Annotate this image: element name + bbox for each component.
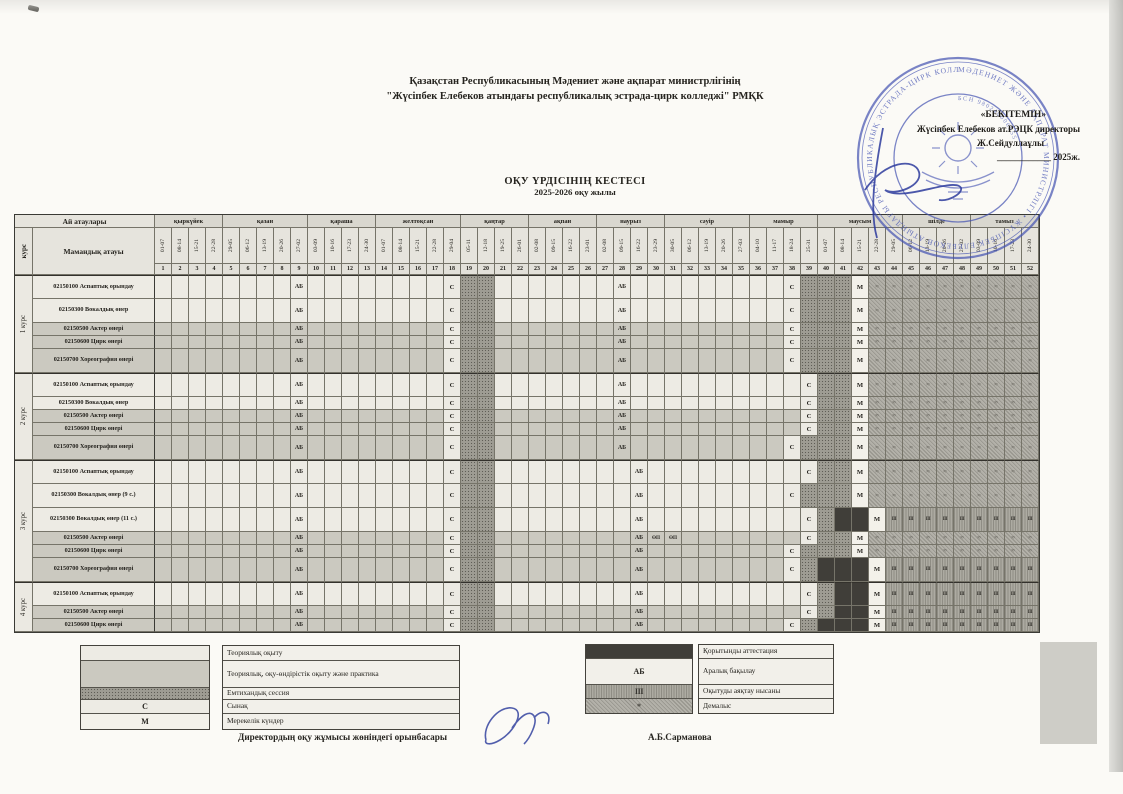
week-cell xyxy=(818,336,835,349)
vertical-text: 23-01 xyxy=(585,239,591,252)
vertical-text: 18-24 xyxy=(789,239,795,252)
week-cell xyxy=(478,397,495,410)
week-cell: ≈ xyxy=(1005,397,1022,410)
week-cell xyxy=(223,397,240,410)
week-number: 35 xyxy=(733,264,750,275)
specialty-row-label: 02150100 Аспаптық орындау xyxy=(33,275,155,299)
week-cell xyxy=(376,606,393,619)
week-cell xyxy=(801,275,818,299)
week-cell xyxy=(546,582,563,606)
week-cell: АБ xyxy=(614,410,631,423)
week-cell xyxy=(597,373,614,397)
week-cell xyxy=(342,349,359,373)
week-cell xyxy=(206,582,223,606)
week-cell xyxy=(359,349,376,373)
week-cell: ≈ xyxy=(1022,460,1039,484)
week-cell: АБ xyxy=(291,606,308,619)
week-cell xyxy=(478,619,495,632)
week-cell: ≈ xyxy=(937,484,954,508)
week-cell xyxy=(648,460,665,484)
week-cell: ІІІ xyxy=(937,558,954,582)
week-cell xyxy=(597,582,614,606)
week-cell: ≈ xyxy=(903,397,920,410)
week-cell xyxy=(767,582,784,606)
week-cell xyxy=(393,436,410,460)
week-cell: АБ xyxy=(631,619,648,632)
week-cell: ≈ xyxy=(988,484,1005,508)
week-cell xyxy=(563,423,580,436)
week-cell: АБ xyxy=(291,349,308,373)
vertical-text: 17-23 xyxy=(347,239,353,252)
week-cell xyxy=(750,373,767,397)
week-cell xyxy=(189,410,206,423)
week-number: 1 xyxy=(155,264,172,275)
week-cell: АБ xyxy=(291,558,308,582)
week-cell xyxy=(495,619,512,632)
week-cell: ≈ xyxy=(920,545,937,558)
week-cell xyxy=(427,299,444,323)
week-cell xyxy=(563,373,580,397)
vertical-text: 06-12 xyxy=(245,239,251,252)
week-cell xyxy=(172,484,189,508)
week-cell xyxy=(716,558,733,582)
week-cell xyxy=(716,275,733,299)
week-cell xyxy=(563,606,580,619)
week-cell: ≈ xyxy=(886,349,903,373)
week-cell: ≈ xyxy=(988,373,1005,397)
week-number: 28 xyxy=(614,264,631,275)
week-cell xyxy=(155,460,172,484)
week-cell: С xyxy=(801,423,818,436)
week-cell xyxy=(852,508,869,532)
week-cell: ≈ xyxy=(988,397,1005,410)
week-cell: ≈ xyxy=(1005,336,1022,349)
week-cell xyxy=(478,460,495,484)
week-cell: ІІІ xyxy=(920,508,937,532)
week-cell xyxy=(580,582,597,606)
week-cell xyxy=(546,532,563,545)
week-cell xyxy=(393,349,410,373)
week-dates: 15-21 xyxy=(189,228,206,264)
week-cell xyxy=(478,423,495,436)
week-cell xyxy=(597,606,614,619)
week-cell xyxy=(257,619,274,632)
week-cell xyxy=(784,373,801,397)
week-cell xyxy=(750,349,767,373)
week-cell: М xyxy=(852,275,869,299)
week-cell xyxy=(784,532,801,545)
week-cell xyxy=(733,410,750,423)
week-cell: ≈ xyxy=(988,423,1005,436)
week-cell xyxy=(614,460,631,484)
specialty-row-label: 02150300 Вокалдық өнер (9 с.) xyxy=(33,484,155,508)
week-cell xyxy=(240,373,257,397)
week-cell xyxy=(665,423,682,436)
week-cell xyxy=(461,582,478,606)
week-cell xyxy=(767,619,784,632)
week-cell xyxy=(784,606,801,619)
week-cell xyxy=(614,558,631,582)
week-cell xyxy=(155,582,172,606)
week-cell xyxy=(461,275,478,299)
week-cell xyxy=(665,545,682,558)
week-number: 16 xyxy=(410,264,427,275)
week-cell: С xyxy=(444,582,461,606)
deputy-signature xyxy=(478,698,578,760)
week-cell xyxy=(274,397,291,410)
week-cell xyxy=(274,582,291,606)
week-cell xyxy=(665,336,682,349)
vertical-text: 24-30 xyxy=(364,239,370,252)
week-cell xyxy=(750,606,767,619)
vertical-text: 20-26 xyxy=(721,239,727,252)
week-cell xyxy=(852,582,869,606)
week-cell xyxy=(512,460,529,484)
week-cell xyxy=(155,275,172,299)
week-cell xyxy=(172,545,189,558)
week-dates: 25-31 xyxy=(801,228,818,264)
week-cell xyxy=(699,336,716,349)
week-cell: ≈ xyxy=(920,436,937,460)
week-cell: ≈ xyxy=(988,545,1005,558)
week-cell xyxy=(206,545,223,558)
week-cell xyxy=(597,619,614,632)
week-dates: 02-08 xyxy=(529,228,546,264)
week-cell xyxy=(410,410,427,423)
week-cell xyxy=(325,349,342,373)
week-cell xyxy=(597,545,614,558)
week-cell: М xyxy=(852,532,869,545)
week-cell xyxy=(495,558,512,582)
vertical-text: курс xyxy=(20,244,28,258)
week-cell xyxy=(240,484,257,508)
week-cell xyxy=(818,373,835,397)
week-dates: 09-15 xyxy=(614,228,631,264)
week-cell xyxy=(716,532,733,545)
week-cell xyxy=(648,336,665,349)
week-cell xyxy=(257,299,274,323)
course-label: 1 курс xyxy=(15,275,33,373)
week-cell: ≈ xyxy=(937,545,954,558)
week-cell xyxy=(359,299,376,323)
week-cell: ≈ xyxy=(954,275,971,299)
week-cell xyxy=(529,460,546,484)
vertical-text: 10-16 xyxy=(330,239,336,252)
week-cell: ≈ xyxy=(903,373,920,397)
week-cell xyxy=(529,558,546,582)
week-cell xyxy=(206,373,223,397)
week-cell xyxy=(189,558,206,582)
week-dates: 09-15 xyxy=(546,228,563,264)
week-cell xyxy=(495,410,512,423)
week-cell: М xyxy=(852,349,869,373)
week-cell xyxy=(733,323,750,336)
week-dates: 06-12 xyxy=(240,228,257,264)
deputy-director-name: А.Б.Сарманова xyxy=(648,732,712,742)
week-cell: ≈ xyxy=(971,423,988,436)
week-cell: М xyxy=(869,508,886,532)
week-cell: ІІІ xyxy=(903,582,920,606)
week-cell xyxy=(155,436,172,460)
week-cell xyxy=(767,558,784,582)
week-cell xyxy=(665,582,682,606)
vertical-text: 12-18 xyxy=(483,239,489,252)
week-cell xyxy=(461,397,478,410)
week-cell xyxy=(410,460,427,484)
week-cell xyxy=(835,606,852,619)
week-cell: ≈ xyxy=(869,423,886,436)
week-number: 50 xyxy=(988,264,1005,275)
week-cell xyxy=(461,436,478,460)
week-cell xyxy=(546,275,563,299)
specialty-row-label: 02150700 Хореография өнері xyxy=(33,558,155,582)
week-cell: ≈ xyxy=(903,323,920,336)
week-cell xyxy=(172,460,189,484)
week-cell xyxy=(155,397,172,410)
week-cell: ІІІ xyxy=(903,558,920,582)
specialty-row-label: 02150700 Хореография өнері xyxy=(33,436,155,460)
week-cell: АБ xyxy=(291,545,308,558)
week-cell xyxy=(750,508,767,532)
week-cell xyxy=(359,423,376,436)
week-cell xyxy=(189,349,206,373)
week-cell xyxy=(342,532,359,545)
week-cell xyxy=(206,619,223,632)
week-cell: С xyxy=(801,508,818,532)
week-cell xyxy=(682,619,699,632)
week-cell xyxy=(274,460,291,484)
week-cell xyxy=(716,484,733,508)
week-cell: ≈ xyxy=(954,299,971,323)
week-cell: С xyxy=(444,323,461,336)
week-cell xyxy=(563,299,580,323)
week-cell xyxy=(308,349,325,373)
week-cell xyxy=(835,545,852,558)
week-cell xyxy=(495,397,512,410)
week-number: 52 xyxy=(1022,264,1039,275)
week-cell xyxy=(376,323,393,336)
legend-swatch-E xyxy=(81,688,209,700)
week-cell: ≈ xyxy=(920,299,937,323)
week-cell xyxy=(223,349,240,373)
week-cell xyxy=(240,410,257,423)
week-cell: ≈ xyxy=(937,349,954,373)
week-cell xyxy=(665,484,682,508)
vertical-text: 16-22 xyxy=(568,239,574,252)
week-cell xyxy=(733,532,750,545)
week-cell: С xyxy=(444,299,461,323)
legend-label: Емтихандық сессия xyxy=(223,688,459,700)
week-cell: АБ xyxy=(614,423,631,436)
week-cell xyxy=(801,484,818,508)
specialty-column-header: Мамандық атауы xyxy=(33,228,155,275)
week-cell xyxy=(835,349,852,373)
legend-right-labels: Қорытынды аттестацияАралық бақылауОқытуд… xyxy=(698,644,834,714)
week-cell xyxy=(699,275,716,299)
week-cell xyxy=(478,323,495,336)
week-cell xyxy=(563,436,580,460)
week-cell: ≈ xyxy=(903,349,920,373)
week-cell: ≈ xyxy=(903,410,920,423)
week-cell: ≈ xyxy=(886,323,903,336)
week-cell xyxy=(835,436,852,460)
vertical-text: 16-22 xyxy=(636,239,642,252)
week-cell: ≈ xyxy=(954,484,971,508)
week-cell: ≈ xyxy=(886,532,903,545)
week-cell: ≈ xyxy=(869,460,886,484)
week-number: 23 xyxy=(529,264,546,275)
week-cell xyxy=(461,323,478,336)
week-cell xyxy=(274,484,291,508)
week-cell xyxy=(359,558,376,582)
week-cell: АБ xyxy=(631,508,648,532)
week-cell xyxy=(223,275,240,299)
week-cell: С xyxy=(784,299,801,323)
week-cell xyxy=(257,275,274,299)
week-cell xyxy=(359,545,376,558)
week-cell xyxy=(580,545,597,558)
week-cell: АБ xyxy=(614,275,631,299)
week-cell: ≈ xyxy=(1005,545,1022,558)
week-cell: АБ xyxy=(614,323,631,336)
week-cell xyxy=(172,336,189,349)
week-cell xyxy=(546,423,563,436)
vertical-text: 06-12 xyxy=(687,239,693,252)
week-cell xyxy=(495,606,512,619)
week-cell: ≈ xyxy=(1022,423,1039,436)
academic-year: 2025-2026 оқу жылы xyxy=(230,187,920,197)
week-cell: С xyxy=(444,410,461,423)
week-number: 34 xyxy=(716,264,733,275)
week-cell: ≈ xyxy=(903,299,920,323)
week-cell xyxy=(223,619,240,632)
week-cell: ≈ xyxy=(1005,410,1022,423)
week-cell: ≈ xyxy=(971,299,988,323)
week-cell: С xyxy=(784,558,801,582)
week-cell xyxy=(189,436,206,460)
week-cell xyxy=(257,545,274,558)
week-cell xyxy=(478,606,495,619)
vertical-text: 09-15 xyxy=(551,239,557,252)
week-number: 9 xyxy=(291,264,308,275)
week-cell xyxy=(733,275,750,299)
week-cell xyxy=(784,410,801,423)
week-cell: ≈ xyxy=(971,436,988,460)
week-dates: 08-14 xyxy=(835,228,852,264)
week-cell: ≈ xyxy=(869,349,886,373)
week-cell: С xyxy=(801,532,818,545)
week-number: 8 xyxy=(274,264,291,275)
week-dates: 22-28 xyxy=(206,228,223,264)
week-cell xyxy=(189,323,206,336)
week-cell xyxy=(461,423,478,436)
week-cell: ІІІ xyxy=(1022,606,1039,619)
organization-header: Қазақстан Республикасының Мәдениет және … xyxy=(230,74,920,104)
week-cell xyxy=(682,532,699,545)
week-cell: С xyxy=(444,436,461,460)
week-cell xyxy=(648,423,665,436)
week-cell xyxy=(716,373,733,397)
week-cell xyxy=(614,582,631,606)
week-cell xyxy=(376,619,393,632)
week-cell xyxy=(682,582,699,606)
week-cell xyxy=(512,423,529,436)
week-cell xyxy=(274,275,291,299)
week-cell: С xyxy=(444,606,461,619)
week-cell xyxy=(359,336,376,349)
week-cell xyxy=(359,436,376,460)
week-cell xyxy=(835,532,852,545)
week-cell xyxy=(597,275,614,299)
document-title: ОҚУ ҮРДІСІНІҢ КЕСТЕСІ xyxy=(230,176,920,187)
week-cell xyxy=(665,275,682,299)
week-cell xyxy=(818,423,835,436)
week-cell xyxy=(461,460,478,484)
week-cell: ІІІ xyxy=(988,606,1005,619)
week-cell xyxy=(495,349,512,373)
week-cell xyxy=(750,558,767,582)
week-cell xyxy=(512,545,529,558)
week-cell xyxy=(682,299,699,323)
week-cell xyxy=(682,558,699,582)
week-cell xyxy=(223,545,240,558)
week-cell: ≈ xyxy=(903,484,920,508)
week-cell xyxy=(495,299,512,323)
week-cell: ≈ xyxy=(1005,423,1022,436)
week-cell xyxy=(631,397,648,410)
week-cell xyxy=(852,606,869,619)
week-cell: ІІІ xyxy=(971,582,988,606)
week-cell xyxy=(597,508,614,532)
week-cell xyxy=(648,373,665,397)
week-cell xyxy=(563,460,580,484)
week-cell xyxy=(512,508,529,532)
week-cell xyxy=(546,349,563,373)
week-number: 48 xyxy=(954,264,971,275)
week-cell xyxy=(580,436,597,460)
week-cell: ≈ xyxy=(903,336,920,349)
week-cell: ≈ xyxy=(937,532,954,545)
week-cell xyxy=(427,484,444,508)
week-cell: ≈ xyxy=(1022,532,1039,545)
week-cell xyxy=(529,336,546,349)
week-cell xyxy=(240,275,257,299)
week-cell xyxy=(257,397,274,410)
week-cell xyxy=(597,484,614,508)
week-cell xyxy=(495,508,512,532)
week-cell xyxy=(733,299,750,323)
week-cell xyxy=(580,349,597,373)
week-cell xyxy=(427,336,444,349)
specialty-row-label: 02150600 Цирк өнері xyxy=(33,336,155,349)
week-cell xyxy=(597,532,614,545)
week-cell: С xyxy=(784,619,801,632)
week-number: 47 xyxy=(937,264,954,275)
week-cell xyxy=(665,619,682,632)
vertical-text: 13-19 xyxy=(262,239,268,252)
specialty-row-label: 02150500 Актер өнері xyxy=(33,532,155,545)
week-cell xyxy=(682,436,699,460)
week-cell xyxy=(818,484,835,508)
week-cell xyxy=(733,545,750,558)
week-cell xyxy=(682,373,699,397)
week-dates: 16-22 xyxy=(631,228,648,264)
week-cell: ≈ xyxy=(920,349,937,373)
week-number: 39 xyxy=(801,264,818,275)
week-cell xyxy=(648,410,665,423)
week-cell xyxy=(580,299,597,323)
week-cell: ≈ xyxy=(954,397,971,410)
